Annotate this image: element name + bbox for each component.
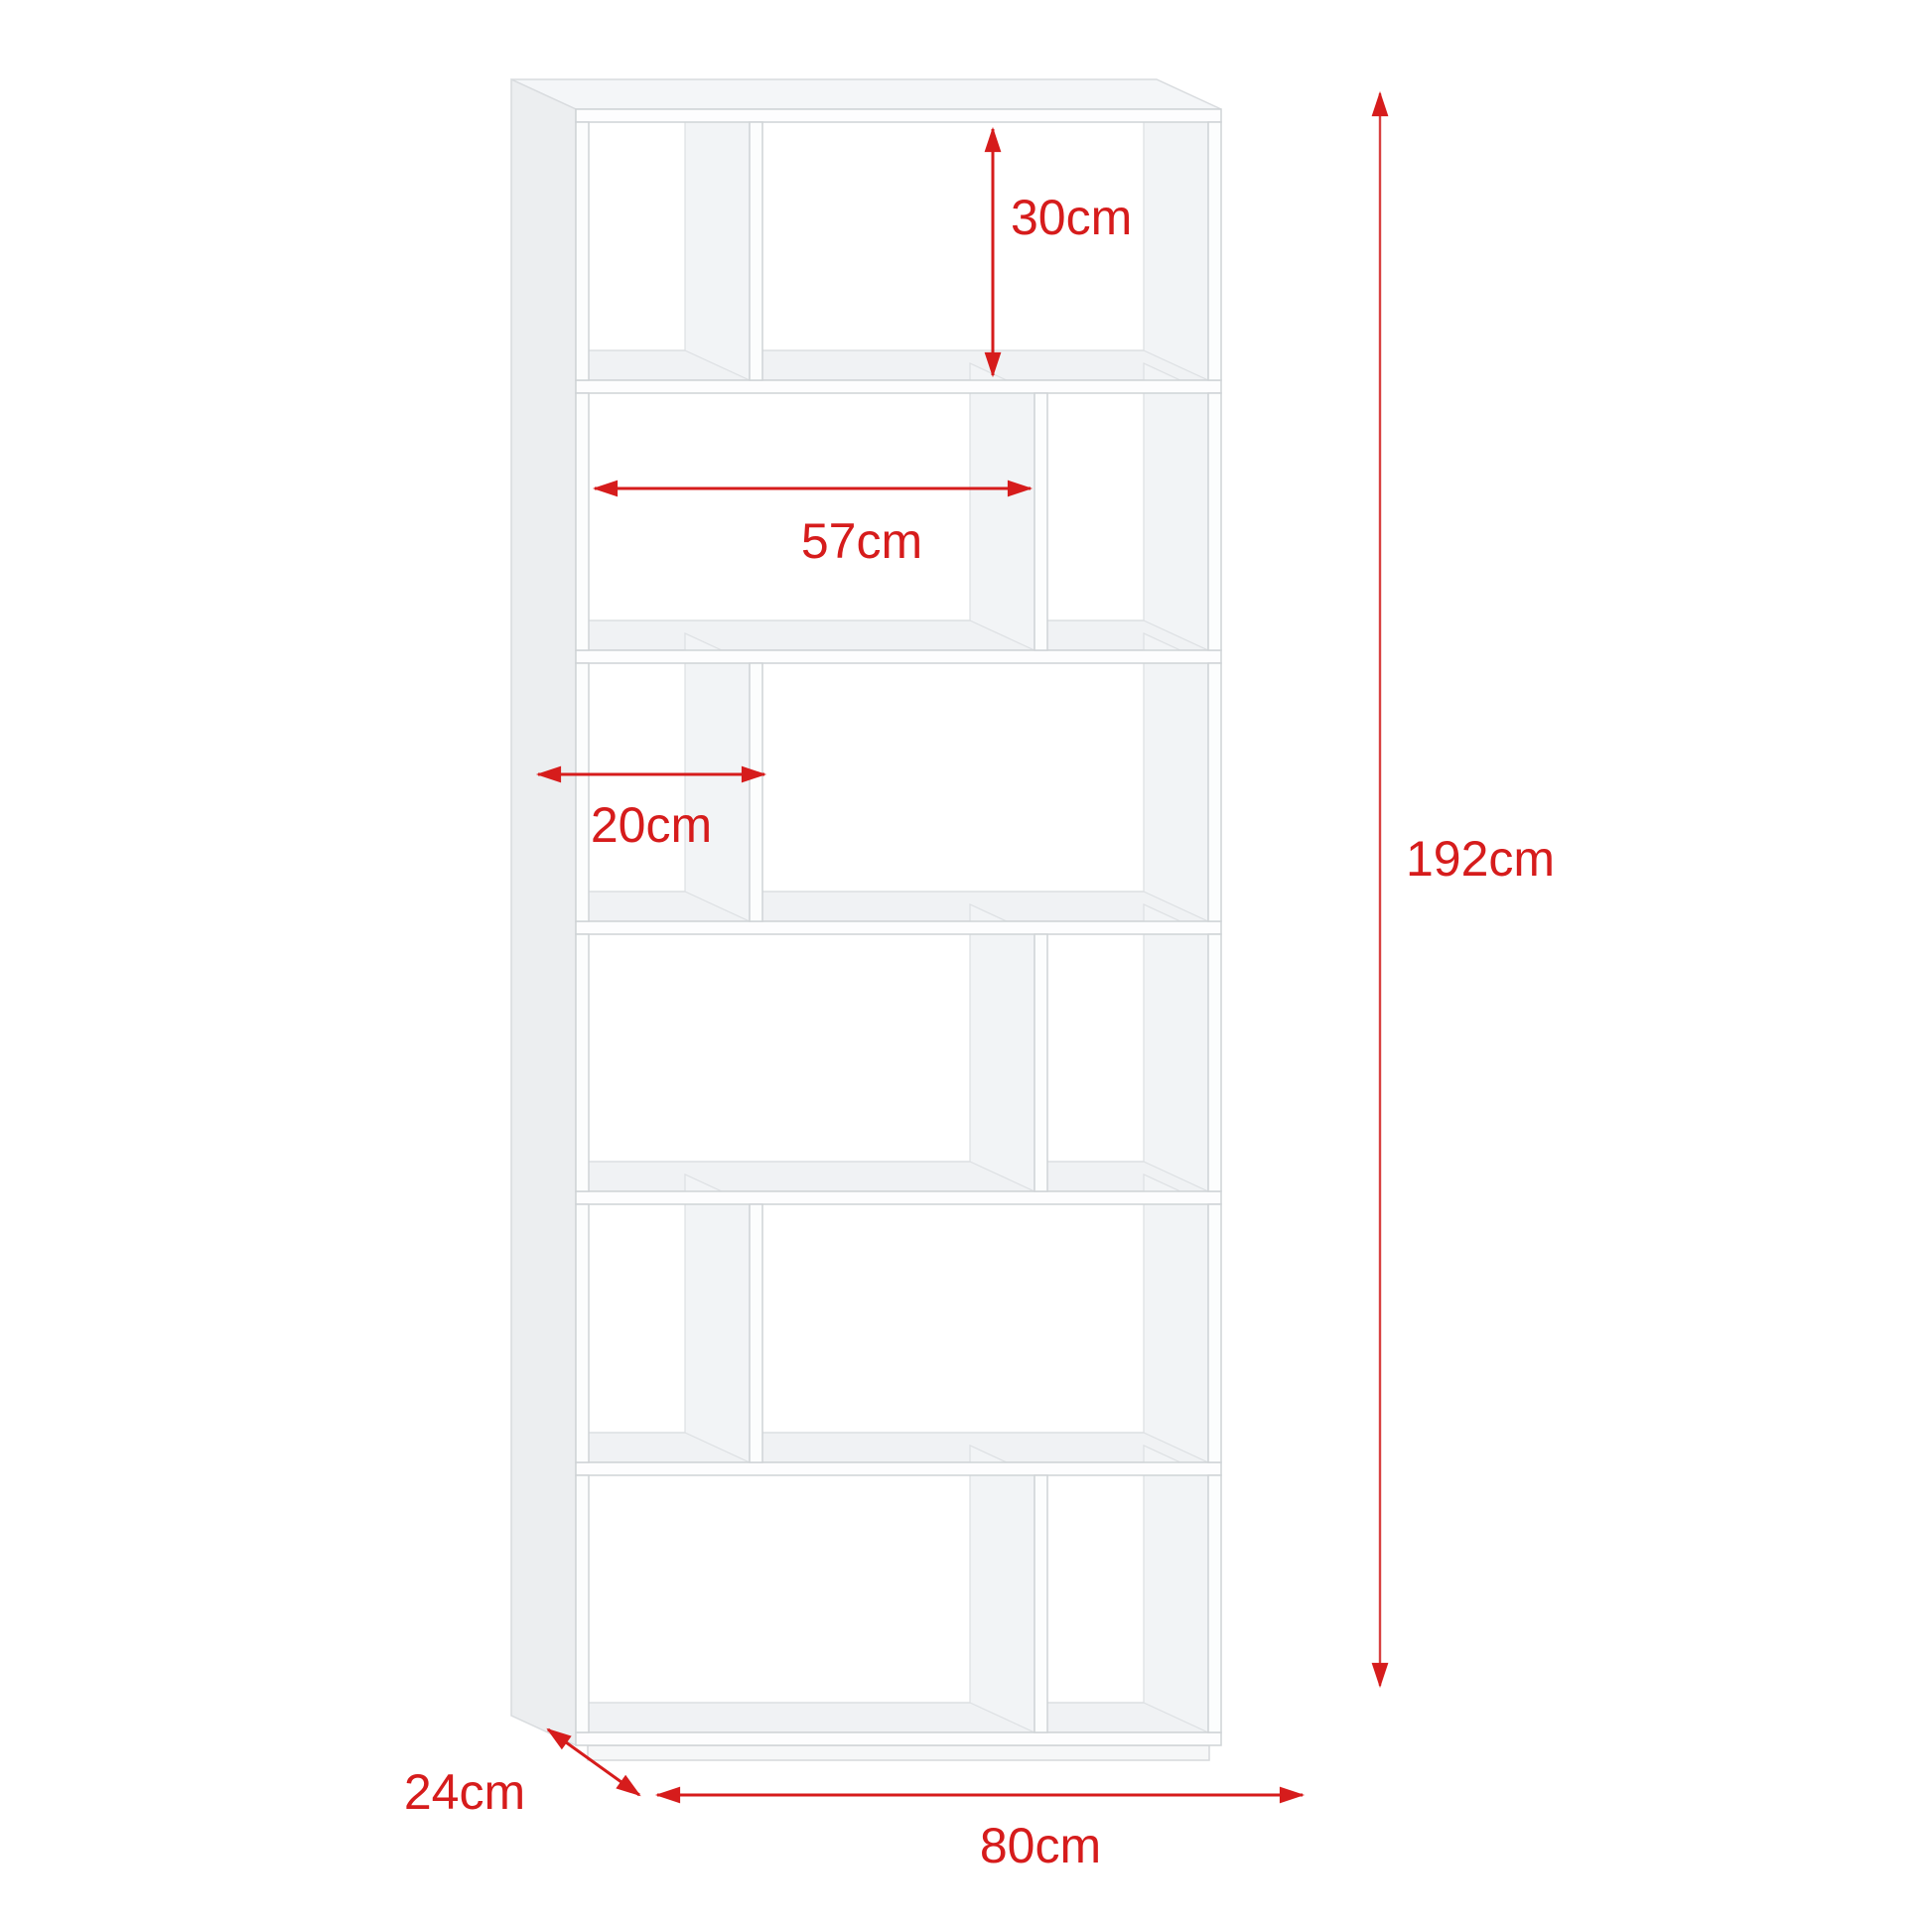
end-panel-side-face bbox=[1144, 1174, 1208, 1462]
bookcase bbox=[511, 79, 1221, 1760]
shelf-top-face bbox=[511, 1162, 1221, 1191]
dimension-total-width: 80cm bbox=[657, 1795, 1303, 1873]
shelf-top-face bbox=[511, 892, 1221, 921]
shelf-board-front bbox=[576, 921, 1221, 934]
bookcase-dimension-diagram: 30cm 57cm 20cm 192cm 24cm 80cm bbox=[0, 0, 1932, 1932]
right-end-panel bbox=[1208, 663, 1221, 921]
divider-panel-left bbox=[750, 122, 762, 380]
divider-panel-right bbox=[1035, 393, 1047, 650]
divider-side-face bbox=[685, 633, 750, 921]
divider-panel-right bbox=[1035, 1475, 1047, 1732]
dimension-label-inner-height: 30cm bbox=[1011, 190, 1132, 245]
right-end-panel bbox=[1208, 1475, 1221, 1732]
shelf-top-face bbox=[511, 350, 1221, 380]
dimension-label-inner-width: 57cm bbox=[801, 513, 922, 569]
divider-side-face bbox=[970, 904, 1035, 1191]
dimension-label-total-width: 80cm bbox=[980, 1818, 1101, 1873]
dimension-label-compartment-width: 20cm bbox=[591, 797, 712, 853]
right-end-panel bbox=[1208, 393, 1221, 650]
shelf-top-face bbox=[511, 1433, 1221, 1462]
shelf-top-face bbox=[511, 621, 1221, 650]
left-end-panel bbox=[576, 663, 589, 921]
divider-panel-left bbox=[750, 663, 762, 921]
shelf-board-front bbox=[576, 1191, 1221, 1204]
left-outer-side-face bbox=[511, 79, 576, 1745]
divider-panel-left bbox=[750, 1204, 762, 1462]
dimension-label-total-height: 192cm bbox=[1406, 831, 1555, 887]
divider-side-face bbox=[970, 363, 1035, 650]
dimension-diagram-page: 30cm 57cm 20cm 192cm 24cm 80cm bbox=[0, 0, 1932, 1932]
dimension-label-depth: 24cm bbox=[404, 1764, 525, 1820]
left-end-panel bbox=[576, 122, 589, 380]
shelf-board-front bbox=[576, 1462, 1221, 1475]
divider-side-face bbox=[685, 92, 750, 380]
divider-side-face bbox=[970, 1446, 1035, 1732]
right-end-panel bbox=[1208, 934, 1221, 1191]
right-end-panel bbox=[1208, 1204, 1221, 1462]
end-panel-side-face bbox=[1144, 633, 1208, 921]
dimension-inner-width: 57cm bbox=[595, 488, 1031, 569]
left-end-panel bbox=[576, 1475, 589, 1732]
shelf-board-front bbox=[576, 380, 1221, 393]
bottom-board-front bbox=[576, 1732, 1221, 1745]
dimension-inner-height: 30cm bbox=[993, 129, 1132, 375]
end-panel-side-face bbox=[1144, 92, 1208, 380]
left-end-panel bbox=[576, 934, 589, 1191]
top-board-front bbox=[576, 109, 1221, 122]
left-end-panel bbox=[576, 1204, 589, 1462]
divider-side-face bbox=[685, 1174, 750, 1462]
shelf-top-face bbox=[511, 1703, 1221, 1732]
top-board-top-face bbox=[511, 79, 1221, 109]
base-plinth bbox=[588, 1745, 1209, 1760]
left-end-panel bbox=[576, 393, 589, 650]
end-panel-side-face bbox=[1144, 1446, 1208, 1732]
end-panel-side-face bbox=[1144, 904, 1208, 1191]
divider-panel-right bbox=[1035, 934, 1047, 1191]
shelf-board-front bbox=[576, 650, 1221, 663]
end-panel-side-face bbox=[1144, 363, 1208, 650]
dimension-total-height: 192cm bbox=[1380, 93, 1555, 1686]
right-end-panel bbox=[1208, 122, 1221, 380]
